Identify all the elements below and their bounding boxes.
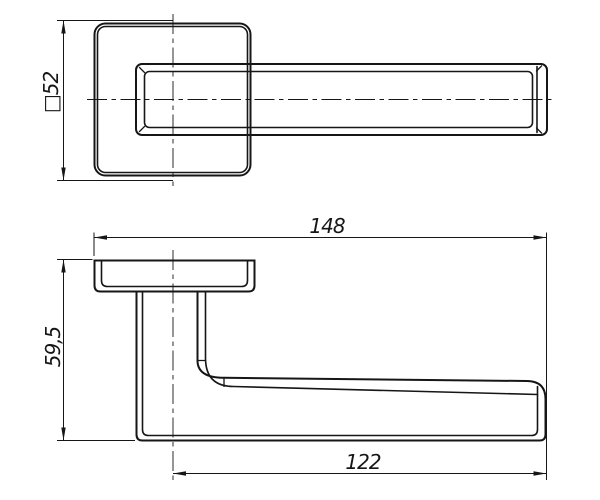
- arrow-down-icon: [61, 428, 65, 441]
- side-rosette-inner-contour: [102, 261, 248, 287]
- arrow-left-icon: [173, 471, 186, 475]
- arrow-right-icon: [534, 235, 547, 239]
- technical-drawing: □52 148: [0, 0, 600, 500]
- dimension-label-grip: 122: [345, 450, 380, 474]
- dimension-grip-length: 122: [173, 450, 547, 476]
- side-tangent-ticks: [198, 361, 225, 387]
- front-view: □52: [39, 14, 553, 186]
- side-lever-inner-contour: [143, 292, 538, 436]
- side-view: 148 59,5 122: [41, 214, 547, 481]
- dimension-rosette-size: □52: [39, 21, 173, 181]
- dimension-label-height: 59,5: [41, 326, 65, 367]
- drawing-svg: □52 148: [0, 0, 600, 500]
- arrow-right-icon: [534, 471, 547, 475]
- dimension-label-length: 148: [309, 214, 344, 238]
- arrow-up-icon: [61, 21, 65, 34]
- arrow-left-icon: [94, 235, 107, 239]
- arrow-up-icon: [61, 260, 65, 273]
- arrow-down-icon: [61, 168, 65, 181]
- dimension-label-rosette: □52: [39, 72, 63, 114]
- side-lever-silhouette: [137, 292, 546, 441]
